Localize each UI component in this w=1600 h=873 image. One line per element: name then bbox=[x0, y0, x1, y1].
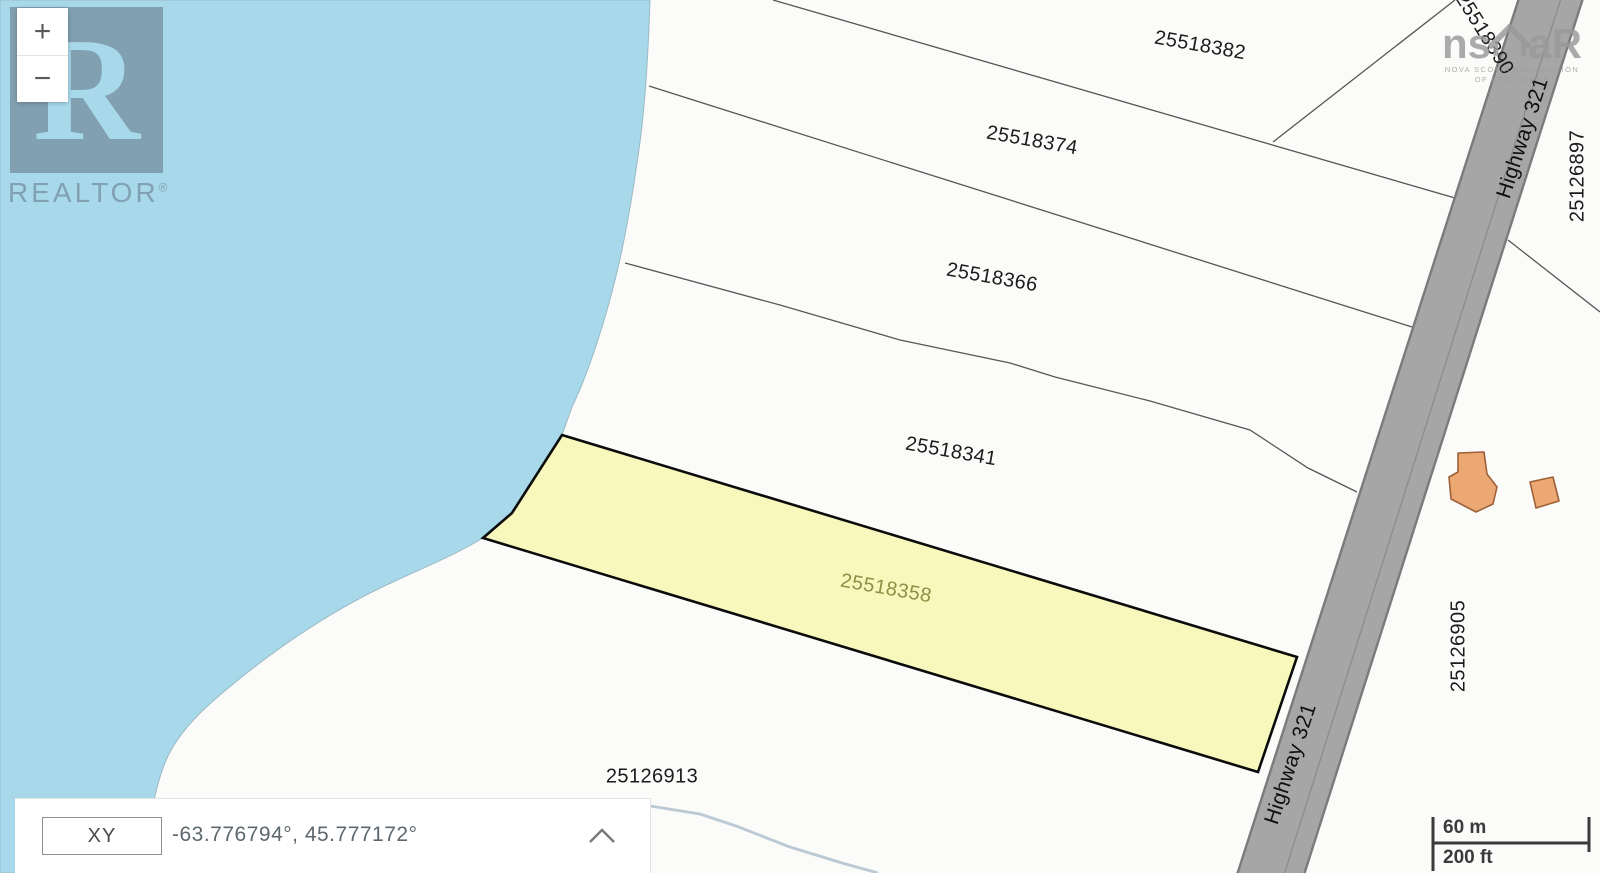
nsar-tagline: NOVA SCOTIA ASSOCIATION OF REALTORS® bbox=[1442, 65, 1582, 85]
parcel-label: 25126905 bbox=[1448, 600, 1471, 692]
chevron-up-icon[interactable] bbox=[587, 826, 617, 846]
registered-symbol: ® bbox=[159, 181, 171, 195]
parcel-label: 25126913 bbox=[606, 766, 698, 789]
scale-bar: 60 m 200 ft bbox=[1425, 812, 1597, 873]
scale-metric-label: 60 m bbox=[1443, 817, 1486, 839]
map-viewport[interactable]: 25518382 25518374 25518366 25518341 2551… bbox=[0, 0, 1600, 873]
zoom-in-button[interactable]: + bbox=[17, 8, 68, 55]
xy-mode-button[interactable]: XY bbox=[42, 817, 162, 855]
zoom-out-button[interactable]: − bbox=[17, 55, 68, 102]
zoom-control: + − bbox=[17, 8, 68, 102]
nsar-watermark: ns aR NOVA SCOTIA ASSOCIATION OF REALTOR… bbox=[1442, 16, 1582, 85]
house-icon bbox=[1488, 20, 1531, 60]
parcel-label: 25126897 bbox=[1567, 130, 1590, 222]
building-l-shaped bbox=[1449, 452, 1497, 512]
nsar-text-right: aR bbox=[1528, 26, 1582, 62]
coordinates-value: -63.776794°, 45.777172° bbox=[172, 823, 418, 847]
coordinate-panel: XY -63.776794°, 45.777172° bbox=[15, 798, 651, 873]
nsar-text-left: ns bbox=[1442, 26, 1491, 62]
scale-imperial-label: 200 ft bbox=[1443, 847, 1493, 869]
building-small bbox=[1530, 477, 1559, 508]
highlighted-parcel[interactable] bbox=[483, 435, 1297, 772]
map-canvas[interactable] bbox=[0, 0, 1600, 873]
stream-line bbox=[650, 806, 878, 873]
realtor-wordmark: REALTOR® bbox=[8, 177, 198, 209]
